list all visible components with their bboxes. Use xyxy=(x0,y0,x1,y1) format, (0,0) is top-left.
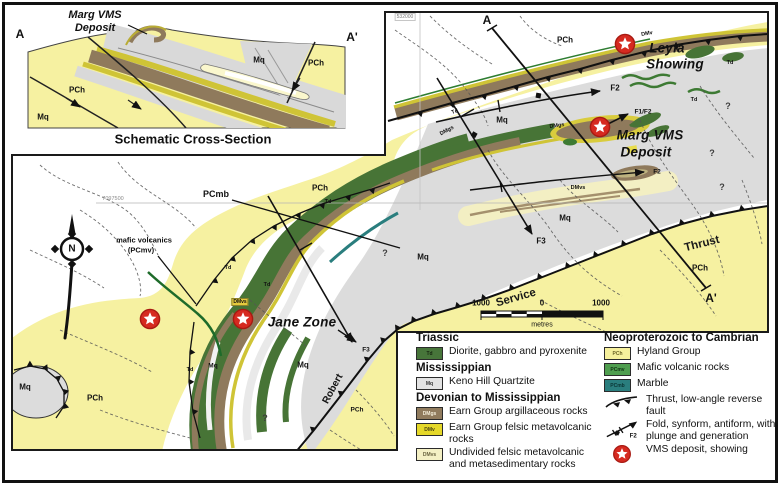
legend-header: Neoproterozoic to Cambrian xyxy=(604,332,776,344)
legend-item: DMvsUndivided felsic metavolcanic and me… xyxy=(416,447,600,470)
legend-left-column: TriassicTdDiorite, gabbro and pyroxenite… xyxy=(416,330,600,472)
legend-swatch-pcmv: PCmv xyxy=(604,363,631,376)
legend-item-label: Mafic volcanic rocks xyxy=(637,362,729,374)
legend-item: Thrust, low-angle reverse fault xyxy=(604,394,776,417)
fold-axis-icon: F2 xyxy=(604,419,640,441)
legend-header: Mississippian xyxy=(416,362,600,374)
legend-item-label: Thrust, low-angle reverse fault xyxy=(646,394,776,417)
legend-swatch-dmgs: DMgs xyxy=(416,407,443,420)
legend-item-label: Keno Hill Quartzite xyxy=(449,376,535,388)
legend-item: DMgsEarn Group argillaceous rocks xyxy=(416,406,600,420)
legend-item: TdDiorite, gabbro and pyroxenite xyxy=(416,346,600,360)
thrust-fault-icon xyxy=(605,394,639,410)
legend-item: VMS deposit, showing xyxy=(604,444,776,469)
legend-swatch-pch: PCh xyxy=(604,347,631,360)
legend-item: F2Fold, synform, antiform, with plunge a… xyxy=(604,419,776,442)
legend-swatch-dmv: DMv xyxy=(416,423,443,436)
legend-item: PChHyland Group xyxy=(604,346,776,360)
legend-item-label: Undivided felsic metavolcanic and metase… xyxy=(449,447,600,470)
legend-swatch-mq: Mq xyxy=(416,377,443,390)
legend-swatch-dmvs: DMvs xyxy=(416,448,443,461)
legend-swatch-pcmb: PCmb xyxy=(604,379,631,392)
legend-item-label: VMS deposit, showing xyxy=(646,444,748,456)
cross-section-title: Schematic Cross-Section xyxy=(115,132,272,147)
legend-item-label: Fold, synform, antiform, with plunge and… xyxy=(646,419,776,442)
legend-item: PCmbMarble xyxy=(604,378,776,392)
legend-item-label: Earn Group argillaceous rocks xyxy=(449,406,588,418)
legend-item-label: Hyland Group xyxy=(637,346,701,358)
legend-item: PCmvMafic volcanic rocks xyxy=(604,362,776,376)
legend-swatch-td: Td xyxy=(416,347,443,360)
geologic-map-figure: AA'Marg VMSDepositMqPChPChMq AA'LeylaSho… xyxy=(0,0,780,485)
legend-item: DMvEarn Group felsic metavolcanic rocks xyxy=(416,422,600,445)
compass-north-letter: N xyxy=(68,244,75,255)
legend-item-label: Marble xyxy=(637,378,668,390)
vms-star-icon xyxy=(612,444,632,469)
legend-item-label: Earn Group felsic metavolcanic rocks xyxy=(449,422,600,445)
legend-header: Triassic xyxy=(416,332,600,344)
legend-header: Devonian to Mississippian xyxy=(416,392,600,404)
legend-item: MqKeno Hill Quartzite xyxy=(416,376,600,390)
legend-item-label: Diorite, gabbro and pyroxenite xyxy=(449,346,587,358)
svg-text:F2: F2 xyxy=(630,433,638,440)
cross-section-graphic xyxy=(28,25,350,149)
legend-right-column: Neoproterozoic to CambrianPChHyland Grou… xyxy=(604,330,776,471)
